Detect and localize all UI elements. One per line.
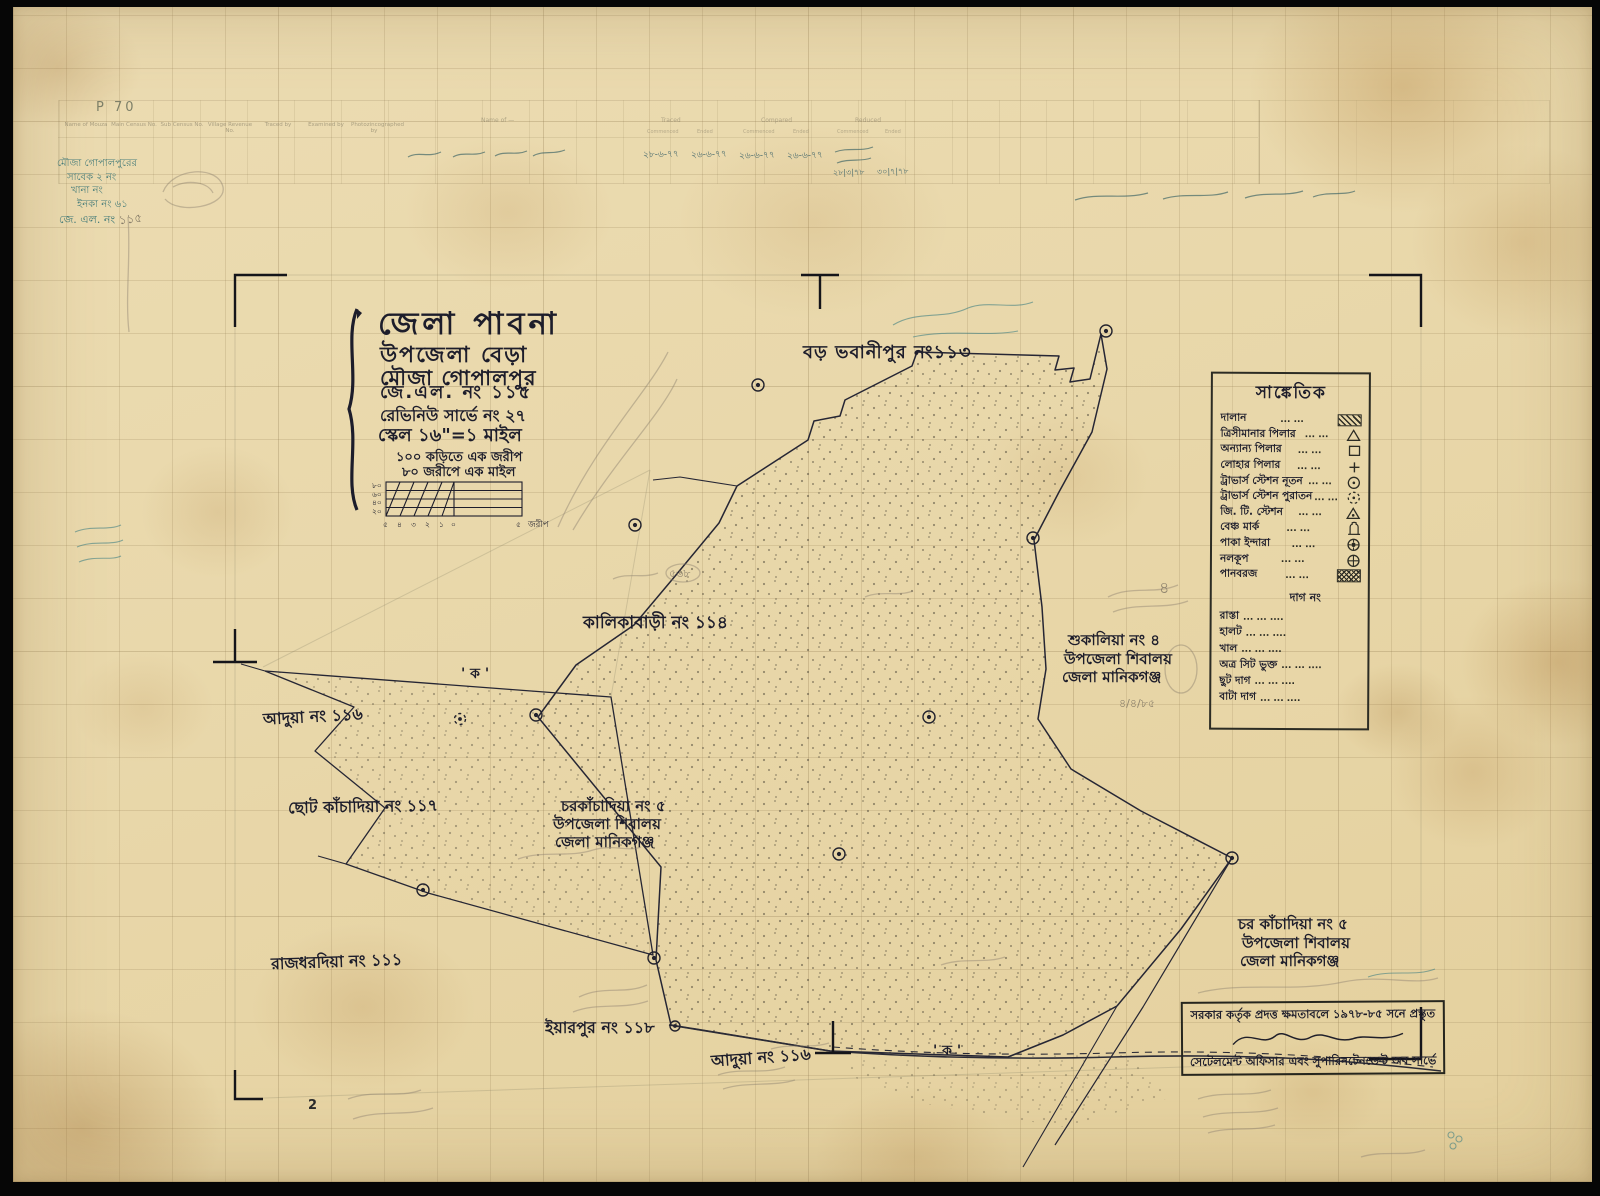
legend-dag-header: দাগ নং [1250, 588, 1361, 608]
stamp-line2: সেটেলমেন্ট অফিসার এবং সুপারিনটেনডেন্ট অব… [1189, 1052, 1437, 1073]
legend-label: রাস্তা [1220, 609, 1240, 626]
legend-row: দালান ... ... [1221, 412, 1362, 428]
legend-dag-row: খাল ... ... .... [1219, 642, 1360, 659]
legend-row: নলকূপ ... ... [1220, 552, 1361, 568]
authority-stamp-box: সরকার কর্তৃক প্রদত্ত ক্ষমতাবলে ১৯৭৮-৮৫ স… [1181, 1000, 1446, 1076]
survey-table-grid-right [1258, 100, 1550, 184]
table-header: Name of Mouza [63, 122, 109, 128]
scale-x-label: ৪ [397, 520, 402, 529]
label-line: জেলা মানিকগঞ্জ [1062, 668, 1172, 687]
stamp-line1: সরকার কর্তৃক প্রদত্ত ক্ষমতাবলে ১৯৭৮-৮৫ স… [1189, 1005, 1437, 1026]
mouza-label-chhoto-kanchadia: ছোট কাঁচাদিয়া নং ১১৭ [288, 793, 438, 823]
masonry-well-icon [1337, 537, 1361, 552]
table-group-header: Reduced [855, 117, 881, 124]
table-sub-header: Ended [793, 129, 809, 135]
officer-signature [1203, 1024, 1423, 1050]
scale-unit: জরীপ [527, 518, 550, 530]
survey-table-headerline [58, 137, 1258, 138]
legend-dag-row: হালট ... ... .... [1220, 625, 1361, 642]
legend-label: পানবরজ [1220, 567, 1258, 584]
legend-row: অন্যান্য পিলার ... ... [1220, 443, 1361, 459]
scale-y-label: ২০ [372, 507, 382, 516]
leader-dots: ... ... .... [1277, 661, 1360, 671]
legend-label: অত্র সিট ভুক্ত [1219, 657, 1277, 674]
scale-x-label: ১ [439, 520, 444, 529]
legend-label: খাল [1219, 641, 1237, 658]
date-note: ৪/৪/৮৫ [1119, 695, 1155, 714]
betel-garden-icon [1337, 569, 1361, 582]
label-line: চর কাঁচাদিয়া নং ৫ [1238, 915, 1350, 934]
scale-x-label: ৩ [411, 520, 416, 529]
label-line: উপজেলা শিবালয় [553, 815, 666, 833]
legend-label: বেঞ্চ মার্ক [1220, 520, 1259, 537]
table-date-entry: ২৬-৬-৭৭ [787, 148, 823, 164]
table-header: Sub Census No. [159, 122, 205, 128]
leader-dots: ... ... [1249, 555, 1337, 565]
scale-y-label: ৪০ [372, 498, 382, 507]
table-sub-header: Commenced [743, 129, 775, 135]
legend-row: পাকা ইন্দারা ... ... [1220, 536, 1361, 552]
section-marker-ka-south: ' ক ' [933, 1039, 961, 1063]
page-number: 2 [308, 1098, 317, 1113]
legend-label: নলকূপ [1220, 551, 1249, 568]
gt-station-icon [1337, 507, 1361, 521]
mouza-label-charkanchadia: চরকাঁচাদিয়া নং ৫ উপজেলা শিবালয় জেলা মা… [561, 797, 666, 851]
table-group-header: Compared [761, 117, 792, 124]
scale-y-label: ৮০ [372, 481, 382, 490]
table-header: Photozincographed by [351, 122, 397, 134]
title-brace [341, 307, 363, 512]
margin-note-line: ইনকা নং ৬১ [57, 198, 207, 212]
legend-dag-row: অত্র সিট ভুক্ত ... ... .... [1219, 658, 1360, 675]
table-header: Main Census No. [111, 122, 157, 128]
table-header: Traced by [255, 122, 301, 128]
diagonal-scale-bar: ৮০ ৬০ ৪০ ২০ ৫ ৪ ৩ ২ ১ ০ ৫ জরীপ [370, 477, 580, 539]
table-date-entry: ২৮-৬-৭৭ [643, 147, 679, 163]
leader-dots: ... ... [1312, 493, 1337, 503]
plot-number-note: ৫৬৮ [669, 565, 690, 584]
table-group-header: Traced [661, 117, 681, 124]
table-header: Examined by [303, 122, 349, 128]
legend-row: ট্রাভার্স স্টেশন পুরাতন ... ... [1220, 490, 1361, 506]
label-line: উপজেলা শিবালয় [1242, 934, 1350, 953]
scale-x-label: ২ [425, 520, 430, 529]
mouza-label-adua-west: আদুয়া নং ১১৬ [262, 701, 363, 733]
jl-prefix: জে. এল. নং [59, 213, 115, 226]
leader-dots: ... ... .... [1239, 612, 1361, 623]
table-date-entry: ২৬-৬-৭৭ [691, 147, 727, 163]
legend-label: হালট [1220, 625, 1242, 642]
table-header: Village Revenue No. [207, 122, 253, 134]
margin-notes: মৌজা গোপালপুরের সাবেক ২ নং খানা নং ইনকা … [57, 157, 207, 211]
other-pillar-icon [1337, 445, 1361, 458]
scale-x-end: ৫ [516, 520, 521, 529]
bench-mark-icon [1337, 522, 1361, 537]
leader-dots: ... ... [1257, 571, 1337, 581]
scan-border: Name of Mouza Main Census No. Sub Census… [0, 0, 1600, 1196]
leader-dots: ... ... [1282, 446, 1338, 456]
legend-row: জি. টি. স্টেশন ... ... [1220, 505, 1361, 521]
jl-pencil-number: ১১৫ [118, 210, 143, 232]
leader-dots: ... ... .... [1237, 645, 1360, 656]
leader-dots: ... ... .... [1242, 629, 1361, 640]
legend-dag-row: বাটা দাগ ... ... .... [1219, 690, 1360, 707]
tube-well-icon [1337, 553, 1361, 568]
leader-dots: ... ... [1296, 430, 1338, 440]
traverse-station-new-icon [1337, 475, 1361, 490]
jl-number-note: জে. এল. নং ১১৫ [59, 211, 142, 231]
mouza-label-kalikabari: কালিকাবাড়ী নং ১১৪ [583, 610, 728, 638]
survey-table-grid [58, 100, 1260, 184]
mouza-label-shukalia: শুকালিয়া নং ৪ উপজেলা শিবালয় জেলা মানিক… [1068, 631, 1172, 687]
label-line: চরকাঁচাদিয়া নং ৫ [561, 797, 666, 815]
margin-note-line: মৌজা গোপালপুরের [57, 157, 207, 171]
mouza-label-bhabanipur: বড় ভবানীপুর নং১১৩ [803, 338, 972, 369]
leader-dots: ... ... [1283, 508, 1337, 518]
section-marker-ka-north: ' ক ' [461, 662, 489, 686]
leader-dots: ... ... [1280, 462, 1337, 472]
table-date-entry: ৩০|৭|৭৮ [877, 166, 909, 180]
tri-junction-pillar-icon [1338, 429, 1362, 443]
margin-note-line: খানা নং [57, 184, 207, 198]
sheet-number: P 70 [96, 100, 137, 115]
legend-row: ত্রিসীমানার পিলার ... ... [1221, 427, 1362, 443]
scale-x-label: ০ [451, 520, 456, 529]
leader-dots: ... ... [1246, 415, 1337, 425]
table-sub-header: Commenced [647, 129, 679, 135]
table-sub-header: Ended [885, 129, 901, 135]
scale-x-label: ৫ [383, 520, 388, 529]
legend-row: পানবরজ ... ... [1220, 568, 1361, 584]
legend-label: বাটা দাগ [1219, 690, 1256, 707]
pencil-number-4: ৪ [1159, 575, 1169, 602]
mouza-label-char-kanchadia: চর কাঁচাদিয়া নং ৫ উপজেলা শিবালয় জেলা ম… [1238, 915, 1350, 971]
legend-row: ট্রাভার্স স্টেশন নূতন ... ... [1220, 474, 1361, 490]
traverse-station-old-icon [1337, 491, 1361, 506]
legend-dag-row: ছুট দাগ ... ... .... [1219, 674, 1360, 691]
mouza-label-rajdhardia: রাজধরদিয়া নং ১১১ [271, 947, 403, 979]
label-line: জেলা মানিকগঞ্জ [1240, 952, 1350, 971]
legend-row: বেঞ্চ মার্ক ... ... [1220, 521, 1361, 537]
legend-box: সাঙ্কেতিক দালান ... ... ত্রিসীমানার পিলা… [1209, 372, 1371, 731]
building-hatch-icon [1338, 414, 1362, 426]
legend-title: সাঙ্কেতিক [1221, 380, 1362, 409]
leader-dots: ... ... .... [1256, 693, 1360, 704]
label-line: শুকালিয়া নং ৪ [1068, 631, 1172, 650]
mouza-label-iarpur: ইয়ারপুর নং ১১৮ [545, 1015, 655, 1042]
legend-label: দালান [1221, 411, 1247, 428]
legend-row: লোহার পিলার ... ... [1220, 458, 1361, 474]
legend-dag-row: রাস্তা ... ... .... [1220, 609, 1361, 626]
margin-note-line: সাবেক ২ নং [57, 171, 207, 185]
table-date-entry: ২৬-৬-৭৭ [739, 148, 775, 164]
table-sub-header: Commenced [837, 129, 869, 135]
leader-dots: ... ... .... [1250, 677, 1360, 688]
leader-dots: ... ... [1270, 539, 1337, 549]
leader-dots: ... ... [1259, 524, 1337, 534]
iron-pillar-icon [1337, 460, 1361, 474]
legend-label: ছুট দাগ [1219, 674, 1250, 691]
table-sub-header: Ended [697, 129, 713, 135]
table-date-entry: ২৮|৩|৭৮ [833, 167, 865, 181]
table-group-header: Name of — [481, 117, 514, 124]
label-line: উপজেলা শিবালয় [1064, 650, 1172, 669]
label-line: জেলা মানিকগঞ্জ [555, 833, 666, 851]
leader-dots: ... ... [1303, 477, 1338, 487]
map-sheet: Name of Mouza Main Census No. Sub Census… [13, 7, 1592, 1182]
